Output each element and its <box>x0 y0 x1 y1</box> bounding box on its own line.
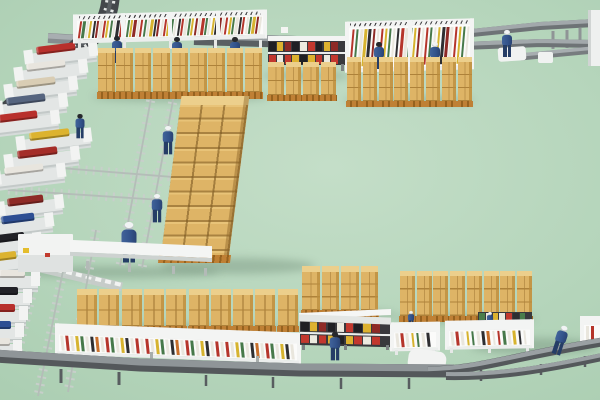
box-side-shade <box>358 62 361 101</box>
box-side-shade <box>512 276 515 316</box>
strip-item <box>466 331 470 345</box>
facility-structure <box>45 253 50 257</box>
bin-item <box>499 313 505 320</box>
bin-row <box>268 41 345 52</box>
box-side-shade <box>529 276 532 316</box>
box-side-shade <box>390 62 393 101</box>
pallet <box>302 95 320 101</box>
machine-cap-right <box>19 306 28 320</box>
machine-cap-right <box>68 76 79 91</box>
box-side-shade <box>333 67 336 95</box>
box-stack <box>278 289 298 332</box>
pallet <box>320 95 338 101</box>
strip-item <box>411 333 415 347</box>
box-side-shade <box>453 62 456 101</box>
strip-item <box>487 331 491 345</box>
strip-item <box>130 338 134 353</box>
pallet <box>378 101 394 107</box>
strip-item <box>461 331 465 345</box>
box-stack <box>302 266 320 317</box>
bin-item <box>363 323 371 332</box>
bin-item <box>319 322 327 331</box>
worker-leg-left <box>164 142 168 155</box>
bin-item <box>292 42 299 51</box>
shelf-strips <box>393 332 437 349</box>
shelf-post <box>436 322 440 351</box>
bin-item <box>301 334 309 343</box>
box-stack <box>286 62 302 101</box>
box-stack <box>189 289 209 332</box>
bin-item <box>346 336 354 345</box>
worker-leg-left <box>76 128 79 139</box>
box-stack <box>322 266 340 317</box>
strip-item <box>513 331 517 345</box>
box-side-shade <box>112 53 115 92</box>
box-side-shade <box>374 62 377 101</box>
strip-item <box>476 331 480 345</box>
box-stack <box>426 57 440 107</box>
machine-cap-right <box>70 145 81 160</box>
shelf-post <box>55 323 59 354</box>
strip-item <box>220 342 224 357</box>
box-side-shade <box>462 276 465 316</box>
strip-item <box>518 330 522 344</box>
box-side-shade <box>437 62 440 101</box>
strip-item <box>110 337 114 352</box>
strip-item <box>140 339 144 354</box>
facility-structure <box>407 347 448 374</box>
bin-shelf-leg <box>302 345 305 350</box>
machine-cap-left <box>15 136 26 151</box>
strip-item <box>280 344 284 359</box>
box-side-shade <box>421 62 424 101</box>
shelf-leg <box>395 350 398 355</box>
machine-cargo <box>0 338 10 346</box>
box-stack <box>208 48 225 99</box>
warehouse-3d-render <box>0 0 600 400</box>
box-side-shade <box>222 53 225 92</box>
pallet <box>285 95 303 101</box>
shelf-leg <box>488 348 491 353</box>
machine-cargo <box>0 321 11 329</box>
strip-item <box>275 344 279 359</box>
strip-item <box>65 336 69 351</box>
box-side-shade <box>185 53 188 92</box>
box-side-shade <box>429 276 432 316</box>
facility-structure <box>204 268 207 276</box>
pallet <box>409 101 425 107</box>
machine-cap-right <box>78 59 89 74</box>
facility-structure <box>128 263 131 272</box>
box-side-shade <box>250 295 253 326</box>
box-stack <box>410 57 424 107</box>
box-side-shade <box>183 295 186 326</box>
worker-leg-left <box>503 45 507 57</box>
pallet <box>457 101 473 107</box>
box-stack <box>341 266 359 317</box>
worker-torso <box>163 131 174 143</box>
bin-item <box>354 323 362 332</box>
box-side-shade <box>412 276 415 316</box>
worker-leg-left <box>153 210 157 223</box>
strip-item <box>395 333 399 347</box>
shelf-strips <box>584 325 600 341</box>
machine-cap-right <box>15 323 24 337</box>
strip-item <box>250 343 254 358</box>
box-side-shade <box>139 295 142 326</box>
machine-cap-right <box>88 42 99 57</box>
strip-item <box>230 342 234 357</box>
machine-cap-right <box>13 340 22 354</box>
shelf-strip-area <box>392 332 438 349</box>
box-stack <box>268 62 284 101</box>
facility-structure <box>18 255 73 272</box>
shelf-leg <box>450 348 453 353</box>
bin-item <box>301 322 309 331</box>
worker-figure <box>328 332 343 361</box>
shelf-leg <box>526 348 529 353</box>
strip-item <box>507 331 511 345</box>
machine-cap-right <box>44 212 55 227</box>
worker-torso <box>502 35 512 46</box>
strip-item <box>115 338 119 353</box>
strip-shelf <box>447 319 532 349</box>
strip-item <box>591 326 594 340</box>
machine-cap-right <box>54 194 65 209</box>
facility-structure <box>281 27 288 33</box>
box-stack <box>442 57 456 107</box>
bin-item <box>363 336 371 345</box>
strip-item <box>175 340 179 355</box>
strip-item <box>75 336 79 351</box>
worker-leg-left <box>331 348 335 361</box>
facility-structure <box>86 261 89 270</box>
strip-item <box>497 331 501 345</box>
box-stack <box>255 289 275 332</box>
pallet <box>346 101 362 107</box>
strip-item <box>120 338 124 353</box>
box-stack <box>450 271 465 322</box>
pallet <box>97 92 116 99</box>
bin-item <box>300 42 307 51</box>
bin-shelf-leg <box>344 345 347 350</box>
strip-item <box>70 336 74 351</box>
strip-item <box>240 342 244 357</box>
worker-figure <box>150 194 165 223</box>
bin-item <box>308 42 315 51</box>
box-side-shade <box>161 295 164 326</box>
worker-torso <box>330 337 341 349</box>
box-stack <box>211 289 231 332</box>
box-side-shade <box>445 276 448 316</box>
box-side-shade <box>204 53 207 92</box>
shelf-leg <box>78 40 81 49</box>
bin-item <box>324 42 331 51</box>
bin-item <box>346 323 354 332</box>
machine-cap-right <box>50 110 61 125</box>
box-stack <box>227 48 244 99</box>
strip-item <box>125 338 129 353</box>
pallet <box>362 101 378 107</box>
strip-item <box>502 331 506 345</box>
worker-figure <box>161 126 176 155</box>
strip-item <box>225 342 229 357</box>
box-side-shade <box>228 295 231 326</box>
bin-item <box>269 42 276 51</box>
strip-item <box>450 332 454 346</box>
strip-item <box>100 337 104 352</box>
strip-item <box>60 335 64 350</box>
strip-shelf <box>392 322 438 352</box>
strip-item <box>492 331 496 345</box>
box-side-shade <box>496 276 499 316</box>
facility-structure <box>172 266 175 274</box>
worker-torso <box>152 199 163 211</box>
strip-item <box>426 333 430 347</box>
strip-item <box>265 343 269 358</box>
strip-shelf <box>582 316 600 344</box>
strip-item <box>190 340 194 355</box>
bin-item <box>310 322 318 331</box>
strip-item <box>270 344 274 359</box>
strip-item <box>160 339 164 354</box>
machine-cargo <box>0 287 18 295</box>
box-side-shade <box>317 272 320 310</box>
shelf-post <box>445 321 449 350</box>
strip-item <box>416 333 420 347</box>
box-side-shade <box>295 295 298 326</box>
shelf-header <box>582 316 600 325</box>
strip-item <box>421 333 425 347</box>
box-stack <box>172 48 189 99</box>
box-side-shade <box>375 272 378 310</box>
strip-item <box>290 344 294 359</box>
strip-item <box>260 343 264 358</box>
strip-item <box>85 336 89 351</box>
worker-leg-right <box>336 348 340 361</box>
strip-item <box>95 337 99 352</box>
strip-item <box>400 333 404 347</box>
machine-cap-right <box>58 93 69 108</box>
strip-item <box>145 339 149 354</box>
pallet <box>425 101 441 107</box>
strip-item <box>481 331 485 345</box>
box-side-shade <box>116 295 119 326</box>
machine-cap-left <box>0 201 6 216</box>
facility-structure <box>150 352 153 370</box>
strip-item <box>245 343 249 358</box>
box-stack <box>245 48 262 99</box>
strip-item <box>471 331 475 345</box>
box-side-shade <box>469 62 472 101</box>
shelf-post <box>390 322 394 351</box>
bin-shelf <box>268 36 345 65</box>
shelf-post <box>530 319 534 348</box>
bin-item <box>331 42 338 51</box>
block-top-face <box>180 96 249 105</box>
bin-item <box>337 323 345 332</box>
worker-leg-right <box>169 142 173 155</box>
bin-shelf-leg <box>386 345 389 350</box>
worker-torso <box>430 47 440 58</box>
pallet <box>267 95 285 101</box>
box-stack <box>153 48 170 99</box>
bin-item <box>285 42 292 51</box>
facility-structure <box>590 10 600 66</box>
bin-item <box>328 323 336 332</box>
strip-item <box>80 336 84 351</box>
box-stack <box>363 57 377 107</box>
box-side-shade <box>94 295 97 326</box>
box-stack <box>303 62 319 101</box>
worker-torso <box>374 47 384 58</box>
pallet <box>134 92 153 99</box>
worker-figure <box>74 114 87 139</box>
strip-item <box>205 341 209 356</box>
bin-item <box>372 324 380 333</box>
strip-item <box>215 341 219 356</box>
bin-item <box>319 335 327 344</box>
shelf-strip-area <box>582 325 600 341</box>
strip-item <box>406 333 410 347</box>
box-stack <box>135 48 152 99</box>
bin-item <box>372 336 380 345</box>
box-stack <box>379 57 393 107</box>
worker-leg-right <box>508 45 512 57</box>
strip-item <box>210 341 214 356</box>
box-side-shade <box>206 295 209 326</box>
worker-leg-right <box>158 210 162 223</box>
shelf-strips <box>448 329 531 346</box>
box-side-shade <box>130 53 133 92</box>
box-stack <box>433 271 448 322</box>
pallet <box>441 101 457 107</box>
pallet <box>152 92 171 99</box>
box-stack <box>347 57 361 107</box>
big-box-block <box>160 96 249 263</box>
strip-item <box>165 340 169 355</box>
box-side-shade <box>336 272 339 310</box>
box-stack <box>417 271 432 322</box>
strip-item <box>170 340 174 355</box>
box-side-shade <box>405 62 408 101</box>
strip-item <box>586 326 589 340</box>
facility-structure <box>23 248 29 253</box>
shelf-strip-area <box>447 329 532 346</box>
box-stack <box>458 57 472 107</box>
strip-item <box>455 332 459 346</box>
box-stack <box>190 48 207 99</box>
strip-item <box>200 341 204 356</box>
machine-cargo <box>0 304 15 312</box>
machine-cap-right <box>23 289 32 303</box>
strip-item <box>523 330 527 344</box>
machine-cap-right <box>56 163 67 178</box>
box-side-shade <box>316 67 319 95</box>
box-stack <box>321 62 337 101</box>
pallet <box>393 101 409 107</box>
strip-item <box>185 340 189 355</box>
worker-leg-right <box>81 128 84 139</box>
production-machine <box>0 338 20 358</box>
box-stack <box>394 57 408 107</box>
box-stack <box>116 48 133 99</box>
shelf-post <box>580 316 584 344</box>
box-stack <box>144 289 164 332</box>
box-side-shade <box>259 53 262 92</box>
strip-item <box>135 338 139 353</box>
box-stack <box>98 48 115 99</box>
strip-item <box>235 342 239 357</box>
pallet <box>115 92 134 99</box>
shelf-leg <box>585 343 588 348</box>
bin-item <box>506 313 512 320</box>
bin-item <box>354 336 362 345</box>
strip-item <box>90 337 94 352</box>
box-side-shade <box>167 53 170 92</box>
box-stack <box>166 289 186 332</box>
box-side-shade <box>479 276 482 316</box>
bin-shelf <box>300 321 390 347</box>
facility-structure <box>538 52 553 63</box>
bin-item <box>316 42 323 51</box>
machine-cap-right <box>31 272 40 286</box>
box-stack <box>233 289 253 332</box>
box-side-shade <box>148 53 151 92</box>
strip-item <box>285 344 289 359</box>
strip-item <box>195 341 199 356</box>
box-side-shade <box>240 53 243 92</box>
facility-structure <box>256 356 259 374</box>
bin-item <box>310 335 318 344</box>
box-side-shade <box>272 295 275 326</box>
strip-item <box>180 340 184 355</box>
worker-figure <box>500 30 514 58</box>
box-side-shade <box>356 272 359 310</box>
bin-item <box>277 42 284 51</box>
bin-shelf-leg <box>341 64 344 71</box>
strip-item <box>105 337 109 352</box>
box-side-shade <box>298 67 301 95</box>
strip-item <box>155 339 159 354</box>
bin-item <box>479 313 485 320</box>
box-side-shade <box>281 67 284 95</box>
facility-structure <box>588 10 591 66</box>
